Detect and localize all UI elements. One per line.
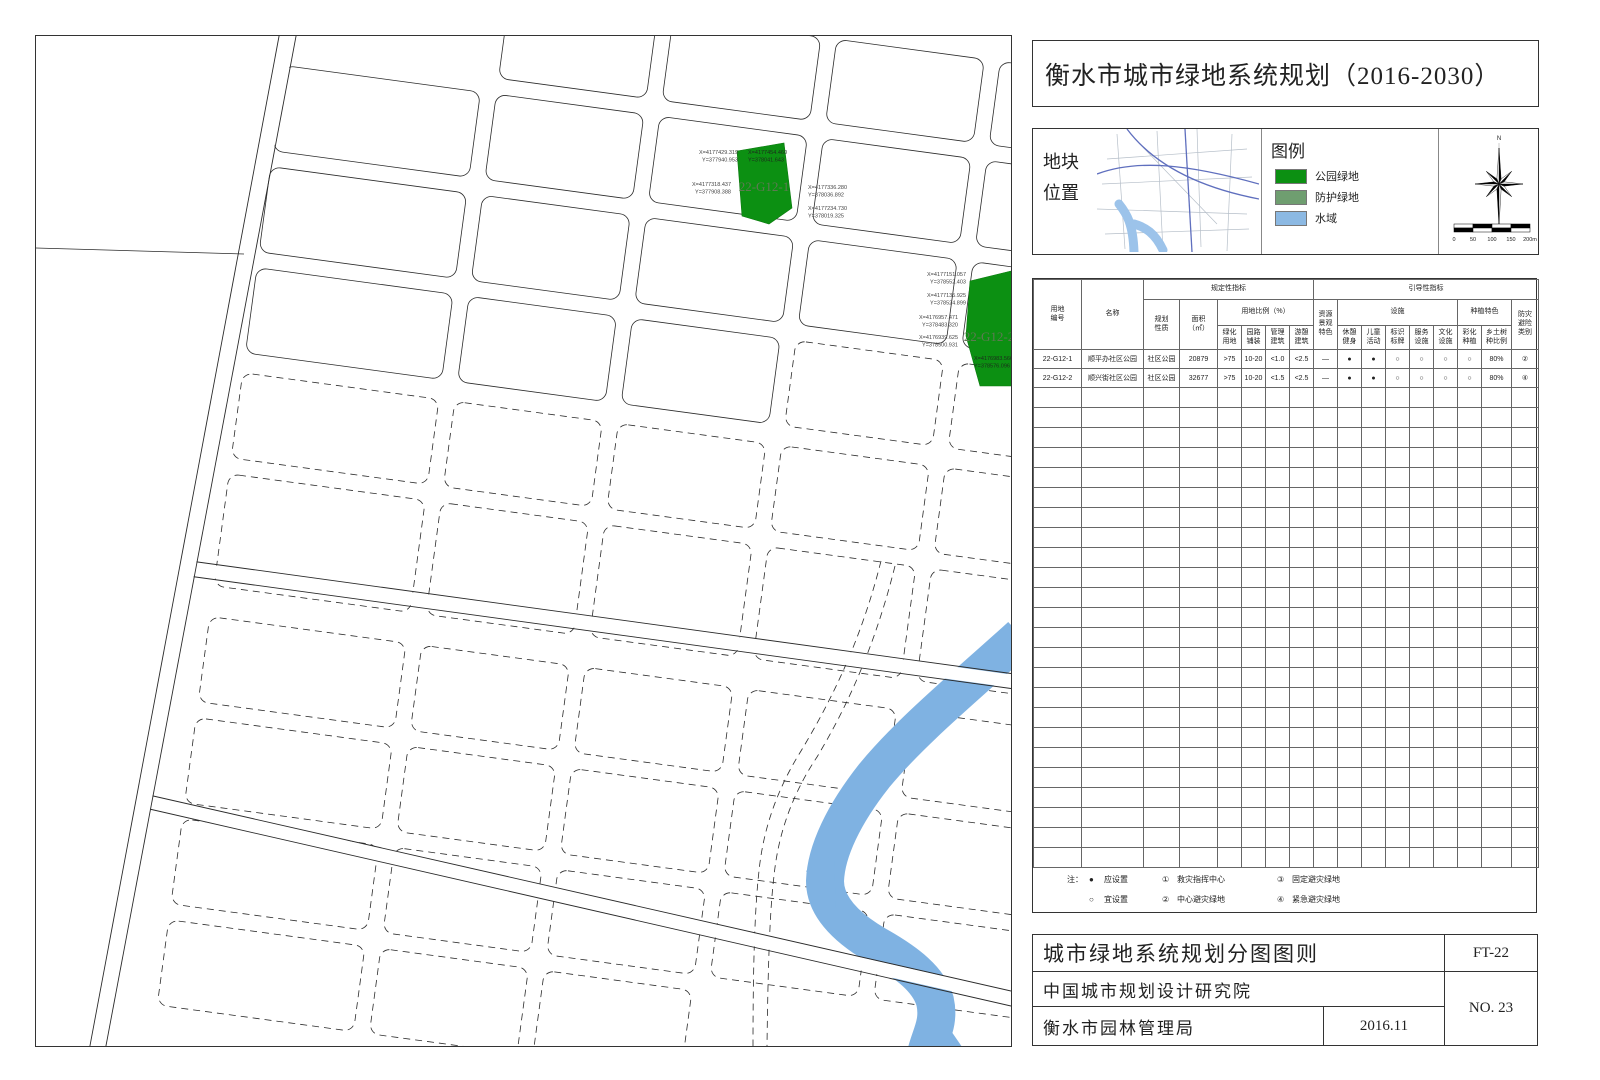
table-empty-rows: [1034, 388, 1539, 868]
parcel-label: 22-G12-2: [964, 329, 1011, 344]
legend-item: 公园绿地: [1275, 169, 1359, 183]
table-empty-row: [1034, 748, 1539, 768]
bottom-arterial-road: [140, 793, 1011, 1006]
svg-text:Y=378576.096: Y=378576.096: [974, 364, 1010, 370]
table-empty-row: [1034, 608, 1539, 628]
legend-item: 水域: [1275, 211, 1337, 225]
table-empty-row: [1034, 728, 1539, 748]
svg-text:0: 0: [1452, 237, 1455, 243]
svg-text:X=4177454.460: X=4177454.460: [748, 150, 787, 156]
parcel-boundary-line: [36, 248, 244, 254]
table-empty-row: [1034, 768, 1539, 788]
divider: [1261, 129, 1262, 254]
sheet-title: 城市绿地系统规划分图图则: [1033, 935, 1445, 972]
legend-item: 防护绿地: [1275, 190, 1359, 204]
indicators-table-panel: 用地 编号 名称 规定性指标 引导性指标 规划 性质 面积 （㎡） 用地比例（%…: [1032, 278, 1537, 913]
col-parcel-no: 用地 编号: [1034, 280, 1082, 350]
legend-swatch-park-green: [1275, 169, 1307, 184]
group-facilities: 设施: [1338, 300, 1458, 326]
col-green-land: 绿化 用地: [1218, 326, 1242, 350]
table-empty-row: [1034, 848, 1539, 868]
col-signage: 标识 标牌: [1386, 326, 1410, 350]
location-legend-panel: 地块 位置 图例 公园绿地 防护绿地 水域 N: [1032, 128, 1539, 255]
col-mgmt-bldg: 管理 建筑: [1266, 326, 1290, 350]
title-block: 城市绿地系统规划分图图则 FT-22 中国城市规划设计研究院 NO. 23 衡水…: [1032, 934, 1537, 1045]
legend-swatch-protective-green: [1275, 190, 1307, 205]
table-empty-row: [1034, 628, 1539, 648]
col-rec-bldg: 游憩 建筑: [1290, 326, 1314, 350]
col-color-plant: 彩化 种植: [1458, 326, 1482, 350]
svg-text:X=4177429.319: X=4177429.319: [699, 150, 738, 156]
col-resource: 资源 景观 特色: [1314, 300, 1338, 350]
svg-text:150: 150: [1506, 237, 1515, 243]
table-empty-row: [1034, 468, 1539, 488]
table-empty-row: [1034, 388, 1539, 408]
table-empty-row: [1034, 528, 1539, 548]
location-minimap: [1097, 129, 1259, 252]
table-empty-row: [1034, 588, 1539, 608]
parcel-label: 22-G12-1: [739, 179, 790, 194]
table-row: 22-G12-1 顺平办社区公园 社区公园 20879 >75 10-20 <1…: [1034, 350, 1539, 369]
compass-scale: N 0 50 100 150 200m: [1439, 129, 1538, 252]
table-empty-row: [1034, 708, 1539, 728]
col-area: 面积 （㎡）: [1180, 300, 1218, 350]
svg-text:Y=377908.388: Y=377908.388: [695, 190, 731, 196]
table-empty-row: [1034, 508, 1539, 528]
svg-text:Y=378036.892: Y=378036.892: [808, 193, 844, 199]
svg-text:X=4177336.280: X=4177336.280: [808, 185, 847, 191]
svg-text:200m: 200m: [1523, 237, 1537, 243]
svg-text:Y=378524.899: Y=378524.899: [930, 301, 966, 307]
circled-4-icon: ④: [1277, 895, 1292, 904]
col-paths: 园路 铺装: [1242, 326, 1266, 350]
circled-2-icon: ②: [1162, 895, 1177, 904]
svg-text:Y=378041.643: Y=378041.643: [748, 158, 784, 164]
col-service: 服务 设施: [1410, 326, 1434, 350]
svg-text:100: 100: [1487, 237, 1496, 243]
svg-text:X=4177318.437: X=4177318.437: [692, 182, 731, 188]
svg-text:Y=378552.403: Y=378552.403: [930, 280, 966, 286]
table-empty-row: [1034, 648, 1539, 668]
group-prescriptive: 规定性指标: [1144, 280, 1314, 300]
svg-text:Y=378483.320: Y=378483.320: [922, 323, 958, 329]
table-empty-row: [1034, 828, 1539, 848]
svg-text:Y=378500.931: Y=378500.931: [922, 343, 958, 349]
table-empty-row: [1034, 668, 1539, 688]
date: 2016.11: [1324, 1007, 1445, 1046]
svg-text:X=4176957.471: X=4176957.471: [919, 315, 958, 321]
indicators-table: 用地 编号 名称 规定性指标 引导性指标 规划 性质 面积 （㎡） 用地比例（%…: [1033, 279, 1539, 868]
location-label: 地块 位置: [1043, 147, 1079, 208]
map-svg: 22-G12-1 22-G12-2 X=4177429.319 Y=377940…: [36, 36, 1011, 1046]
svg-text:50: 50: [1470, 237, 1476, 243]
svg-text:Y=377940.953: Y=377940.953: [702, 158, 738, 164]
svg-text:X=4176983.566: X=4176983.566: [974, 356, 1011, 362]
col-culture: 文化 设施: [1434, 326, 1458, 350]
table-body: 22-G12-1 顺平办社区公园 社区公园 20879 >75 10-20 <1…: [1034, 350, 1539, 388]
col-name: 名称: [1082, 280, 1144, 350]
legend-title: 图例: [1271, 137, 1305, 162]
north-label: N: [1497, 136, 1501, 142]
svg-text:X=4177234.730: X=4177234.730: [808, 206, 847, 212]
col-native-trees: 乡土树 种比例: [1482, 326, 1512, 350]
title-box: 衡水市城市绿地系统规划（2016-2030）: [1032, 40, 1539, 107]
circled-1-icon: ①: [1162, 875, 1177, 884]
col-children: 儿童 活动: [1362, 326, 1386, 350]
table-empty-row: [1034, 568, 1539, 588]
north-arrow-icon: [1475, 148, 1523, 226]
table-empty-row: [1034, 428, 1539, 448]
scale-bar-labels: 0 50 100 150 200m: [1452, 237, 1537, 243]
table-empty-row: [1034, 688, 1539, 708]
svg-text:Y=378019.325: Y=378019.325: [808, 214, 844, 220]
table-empty-row: [1034, 808, 1539, 828]
authority: 衡水市园林管理局: [1033, 1007, 1324, 1046]
table-empty-row: [1034, 788, 1539, 808]
group-land-ratio: 用地比例（%）: [1218, 300, 1314, 326]
col-disaster: 防灾 避险 类别: [1512, 300, 1539, 350]
note-line: ○ 宜设置 ② 中心避灾绿地 ④ 紧急避灾绿地: [1033, 892, 1538, 907]
design-institute: 中国城市规划设计研究院: [1033, 972, 1445, 1007]
filled-dot-icon: ●: [1089, 875, 1104, 884]
sheet-number: NO. 23: [1445, 972, 1538, 1046]
note-line: 注： ● 应设置 ① 救灾指挥中心 ③ 固定避灾绿地: [1033, 872, 1538, 887]
table-row: 22-G12-2 顺兴街社区公园 社区公园 32677 >75 10-20 <1…: [1034, 369, 1539, 388]
legend-swatch-water: [1275, 211, 1307, 226]
group-planting: 种植特色: [1458, 300, 1512, 326]
table-empty-row: [1034, 488, 1539, 508]
svg-text:X=4177135.925: X=4177135.925: [927, 293, 966, 299]
sheet-code: FT-22: [1445, 935, 1538, 972]
table-notes: 注： ● 应设置 ① 救灾指挥中心 ③ 固定避灾绿地 ○ 宜设置 ② 中心避灾绿…: [1033, 867, 1538, 914]
table-empty-row: [1034, 408, 1539, 428]
main-road-west: [89, 36, 297, 1046]
col-fitness: 休憩 健身: [1338, 326, 1362, 350]
svg-text:X=4177151.057: X=4177151.057: [927, 272, 966, 278]
table-empty-row: [1034, 448, 1539, 468]
circled-3-icon: ③: [1277, 875, 1292, 884]
group-guiding: 引导性指标: [1314, 280, 1539, 300]
page-title: 衡水市城市绿地系统规划（2016-2030）: [1033, 56, 1500, 92]
scale-bar: [1454, 224, 1530, 232]
table-empty-row: [1034, 548, 1539, 568]
svg-text:X=4176939.625: X=4176939.625: [919, 335, 958, 341]
map-panel: 22-G12-1 22-G12-2 X=4177429.319 Y=377940…: [35, 35, 1012, 1047]
hollow-dot-icon: ○: [1089, 895, 1104, 904]
col-nature: 规划 性质: [1144, 300, 1180, 350]
